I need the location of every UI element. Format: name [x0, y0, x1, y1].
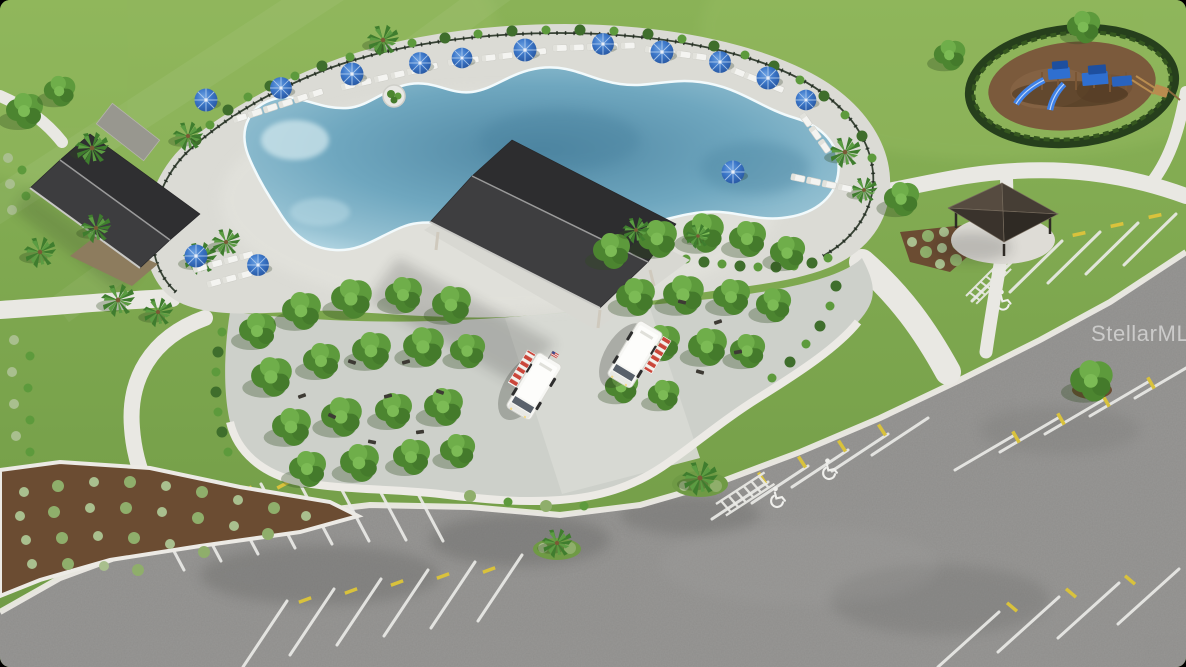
listing-photo: StellarMLS: [0, 0, 1186, 667]
deck-planter: [383, 85, 405, 107]
watermark: StellarMLS: [1091, 321, 1186, 346]
